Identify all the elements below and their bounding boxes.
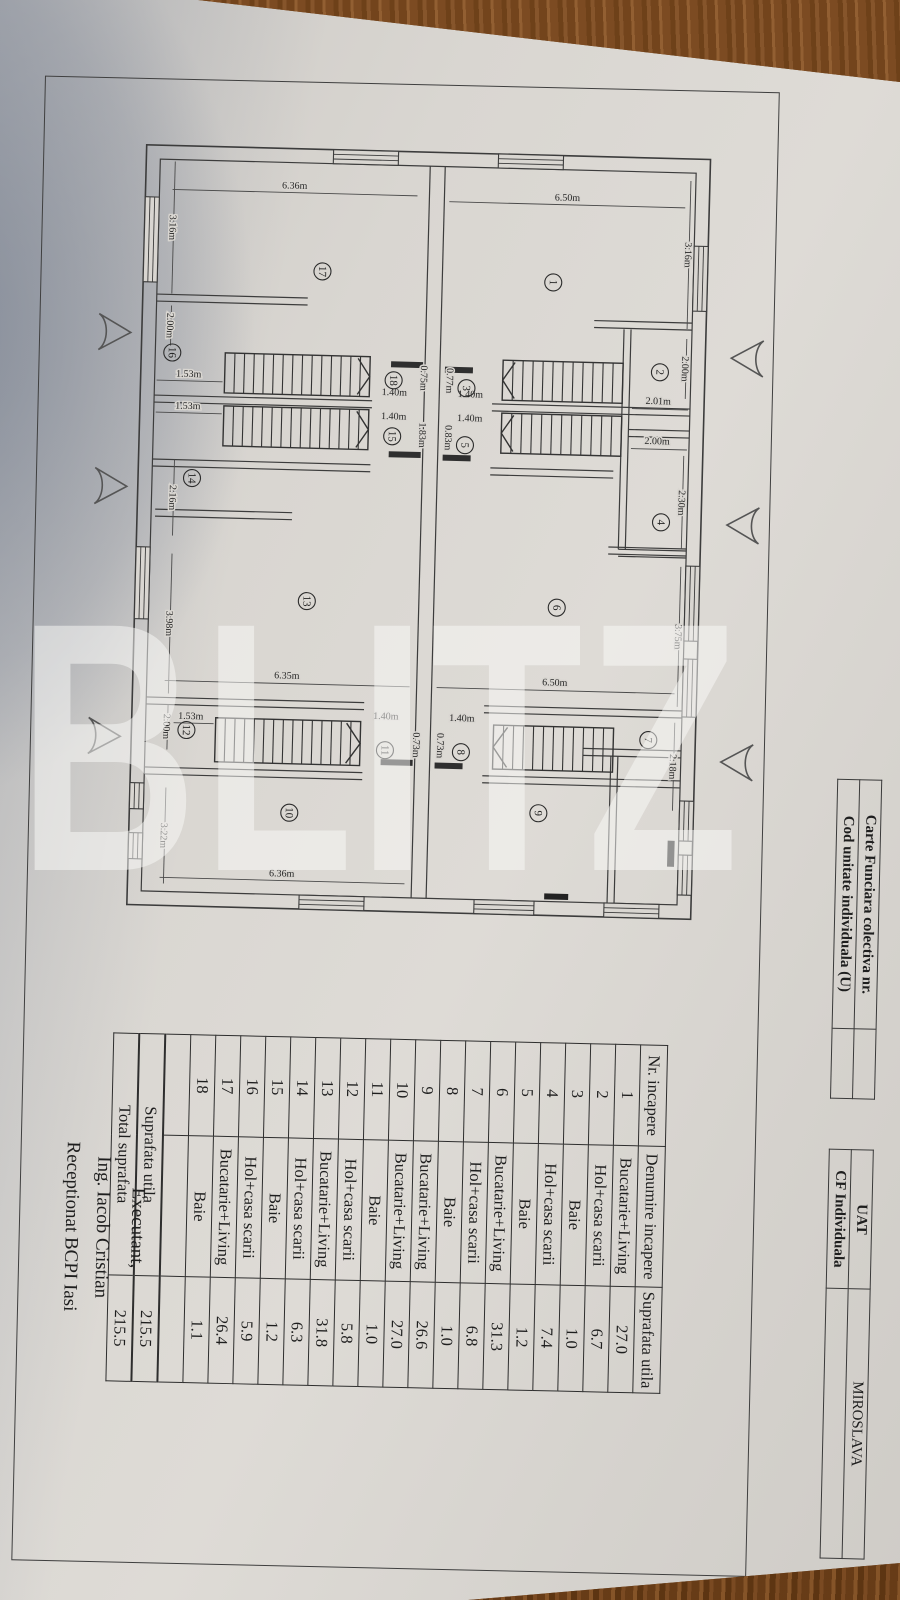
table-cell: 5.9 — [233, 1278, 260, 1385]
table-cell: 2 — [588, 1044, 615, 1146]
table-cell: Baie — [185, 1136, 213, 1278]
col-header-denumire: Denumire incapere — [635, 1146, 665, 1288]
value-cod-unitate — [830, 1028, 854, 1099]
table-cell: 14 — [288, 1037, 315, 1139]
table-cell: Hol+casa scarii — [585, 1145, 613, 1287]
table-cell: 1 — [613, 1044, 640, 1146]
table-cell: Bucatarie+Living — [210, 1136, 238, 1278]
table-cell: 27.0 — [608, 1286, 635, 1393]
table-cell: 1.2 — [258, 1278, 285, 1385]
table-cell: Hol+casa scarii — [285, 1138, 313, 1280]
table-cell: Bucatarie+Living — [610, 1145, 638, 1287]
table-cell: Bucatarie+Living — [385, 1140, 413, 1282]
col-header-nr: Nr. incapere — [638, 1045, 667, 1147]
table-cell: 7.4 — [533, 1285, 560, 1392]
table-cell: 16 — [238, 1036, 265, 1138]
table-cell: 1.0 — [433, 1282, 460, 1389]
table-cell: 26.4 — [208, 1277, 235, 1384]
table-cell: Hol+casa scarii — [235, 1137, 263, 1279]
table-cell: 3 — [563, 1043, 590, 1145]
col-header-suprafata: Suprafata utila — [633, 1287, 662, 1394]
table-cell: Hol+casa scarii — [460, 1142, 488, 1284]
table-cell: Baie — [435, 1141, 463, 1283]
table-cell: 8 — [438, 1040, 465, 1142]
table-cell: 12 — [338, 1038, 365, 1140]
table-cell: 6.8 — [458, 1283, 485, 1390]
table-cell: 1.2 — [508, 1284, 535, 1391]
table-cell: 6.3 — [283, 1279, 310, 1386]
table-cell: 31.3 — [483, 1283, 510, 1390]
table-cell: Baie — [260, 1137, 288, 1279]
table-cell: Hol+casa scarii — [535, 1144, 563, 1286]
table-cell: Bucatarie+Living — [410, 1141, 438, 1283]
table-cell: 5 — [513, 1042, 540, 1144]
table-cell: 10 — [388, 1039, 415, 1141]
table-cell: 1.0 — [558, 1285, 585, 1392]
table-cell: 27.0 — [383, 1281, 410, 1388]
table-cell: 17 — [213, 1035, 240, 1137]
table-cell: 6.7 — [583, 1286, 610, 1393]
signature-engineer: Ing. Iacob Cristian — [87, 1067, 116, 1387]
table-cell: 31.8 — [308, 1279, 335, 1386]
table-cell: 18 — [188, 1035, 215, 1137]
header-table-uat: UAT MIROSLAVA CF Individuala — [820, 1149, 874, 1560]
table-cell: Bucatarie+Living — [485, 1142, 513, 1284]
table-cell: 4 — [538, 1043, 565, 1145]
table-cell: 15 — [263, 1036, 290, 1138]
table-cell: Baie — [560, 1144, 588, 1286]
table-cell: 26.6 — [408, 1282, 435, 1389]
header-table-carte-funciara: Carte Funciara colectiva nr. Cod unitate… — [830, 779, 882, 1100]
room-area-table: Nr. incapere Denumire incapere Suprafata… — [105, 1032, 668, 1394]
table-cell: Baie — [510, 1143, 538, 1285]
label-cf-individuala: CF Individuala — [826, 1149, 851, 1289]
table-cell: 5.8 — [333, 1280, 360, 1387]
table-cell: Bucatarie+Living — [310, 1138, 338, 1280]
table-cell: Hol+casa scarii — [335, 1139, 363, 1281]
signature-block: Executant, Ing. Iacob Cristian Reception… — [56, 1066, 151, 1388]
table-cell: 1.0 — [358, 1281, 385, 1388]
table-cell: 6 — [488, 1041, 515, 1143]
table-cell: Baie — [360, 1140, 388, 1282]
photo-of-cadastral-document: { "header_info": { "table_a": { "rows": … — [0, 0, 900, 1600]
table-cell: 11 — [363, 1039, 390, 1141]
table-cell: 13 — [313, 1037, 340, 1139]
label-uat: UAT — [848, 1150, 873, 1290]
value-carte-funciara — [852, 1029, 876, 1100]
table-cell: 1.1 — [183, 1277, 210, 1384]
document-rotated-content: Carte Funciara colectiva nr. Cod unitate… — [1, 65, 900, 1589]
table-cell: 7 — [463, 1041, 490, 1143]
table-cell: 9 — [413, 1040, 440, 1142]
